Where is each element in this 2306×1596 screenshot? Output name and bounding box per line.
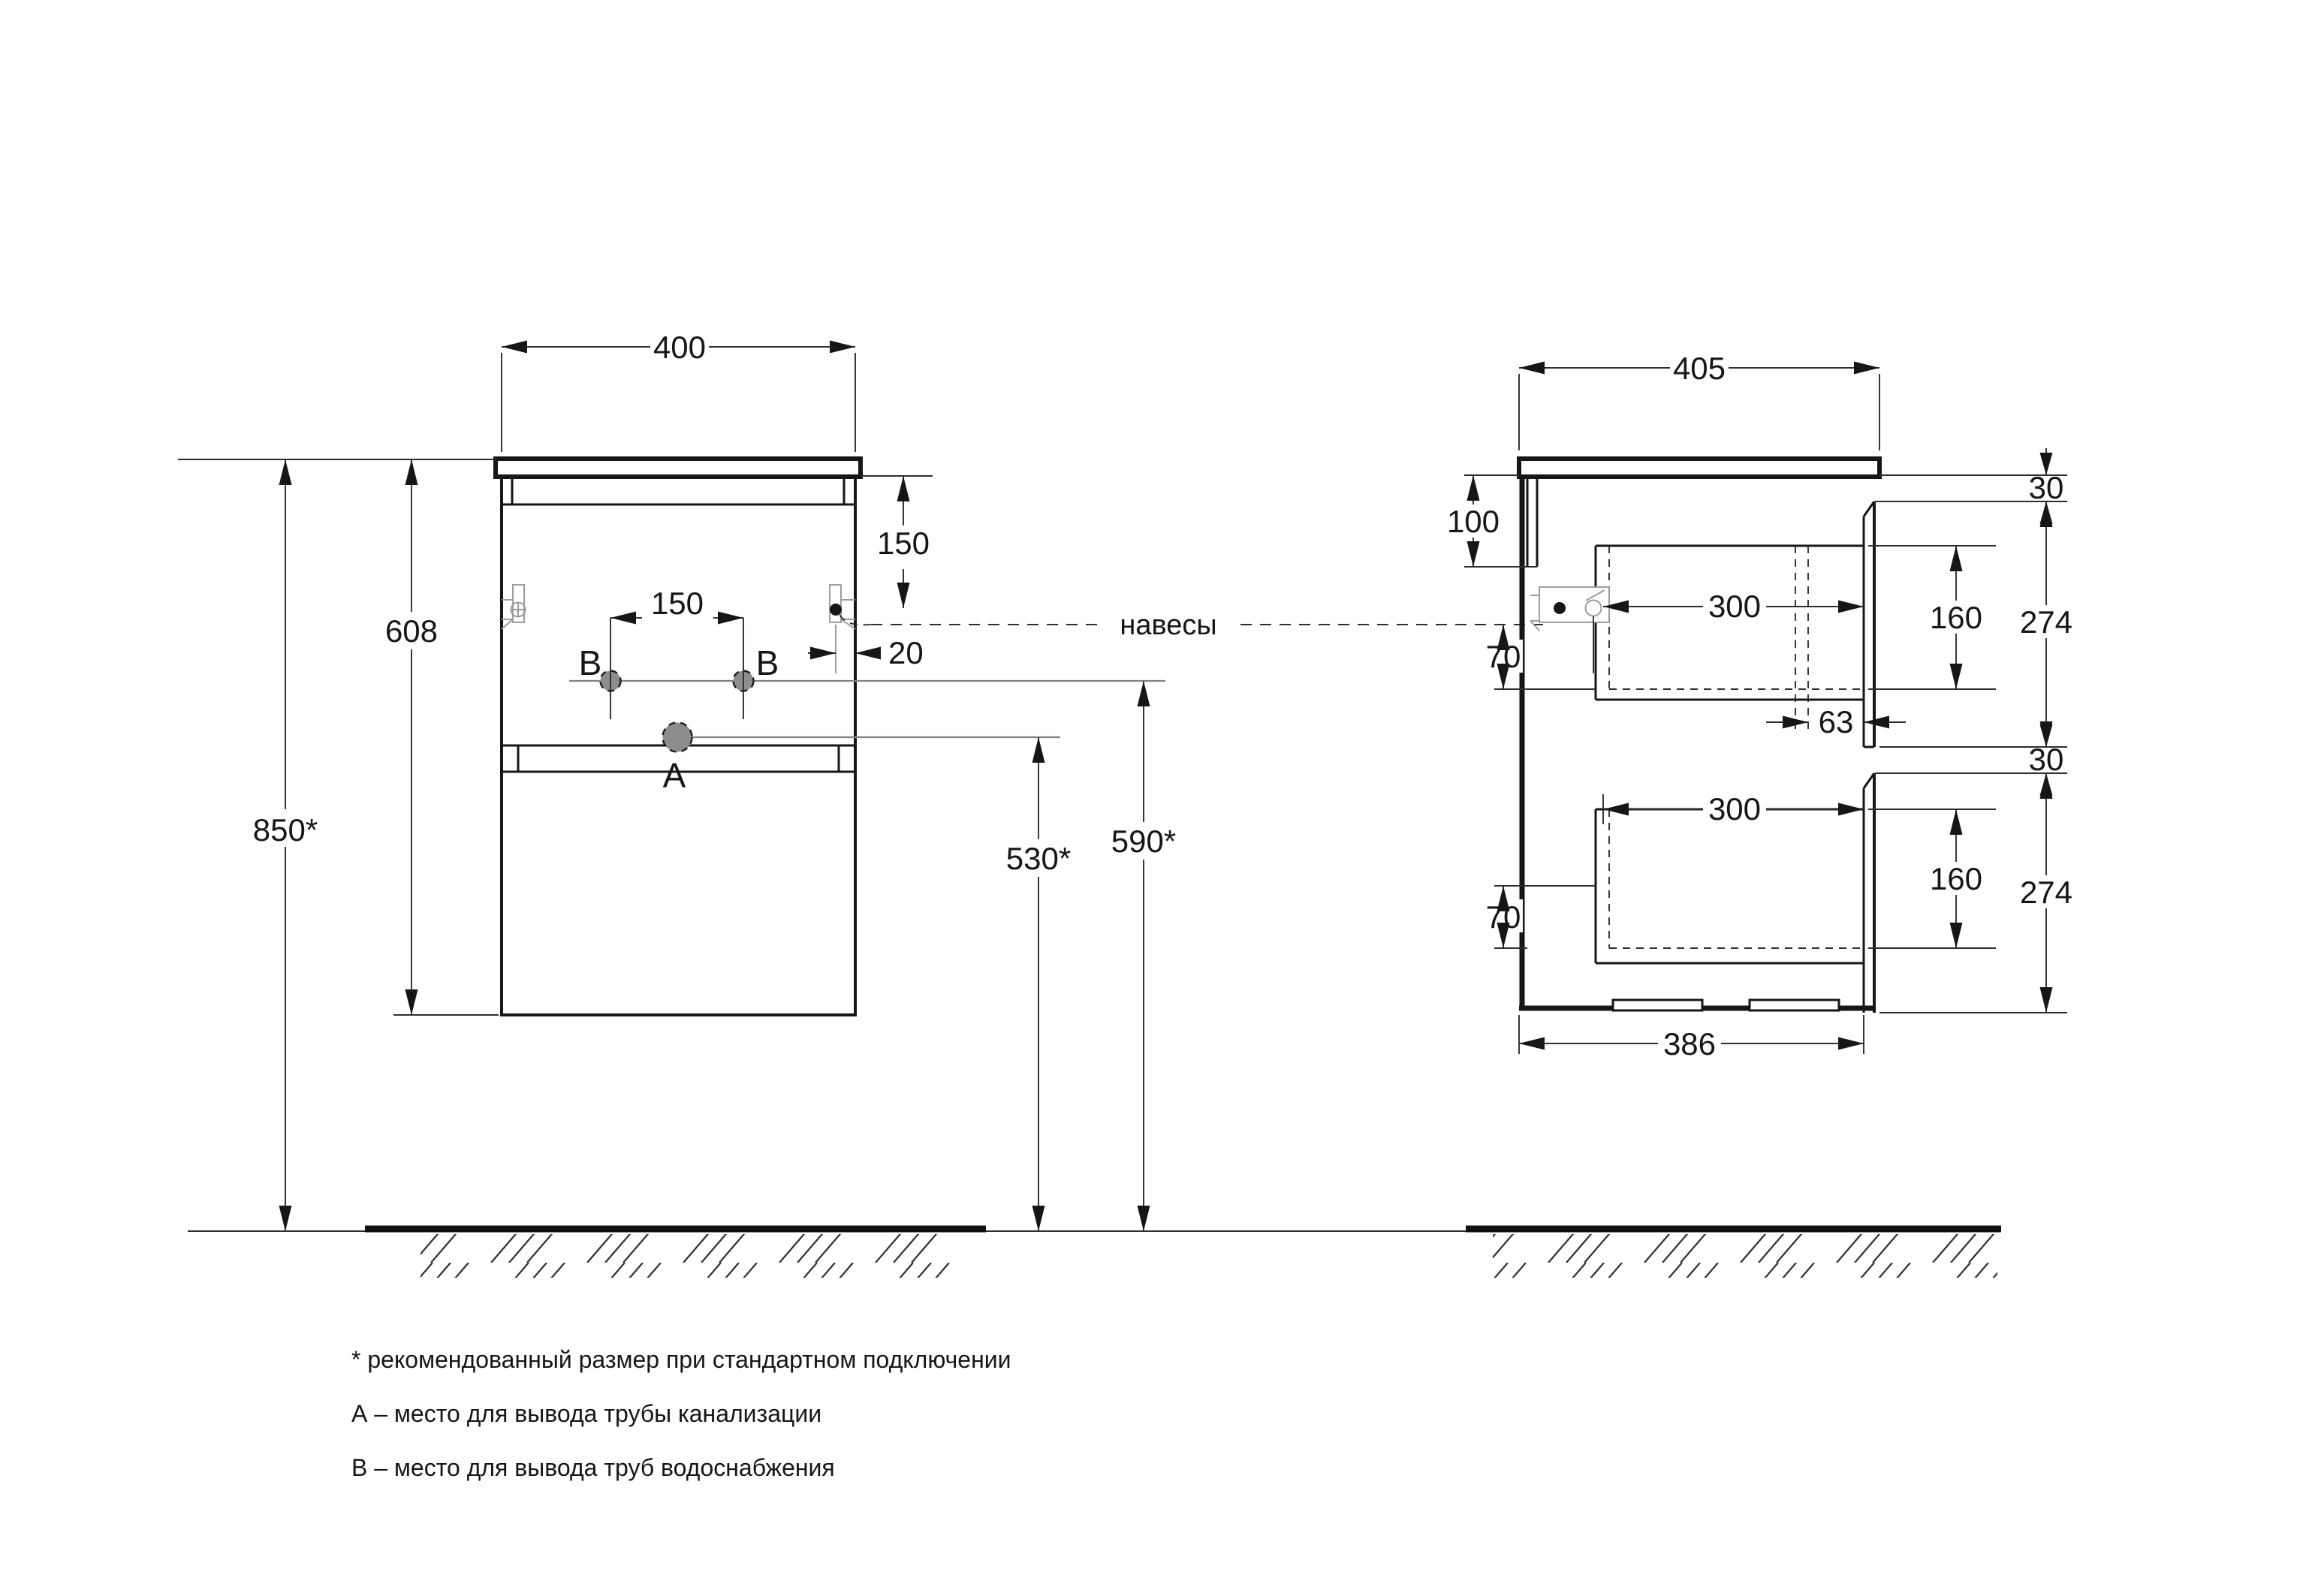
- dim-base-depth: 386: [1663, 1026, 1716, 1061]
- arrowhead: [279, 459, 292, 485]
- bracket-hole: [1586, 601, 1602, 616]
- dim-drawer-depth-lower: 300: [1708, 791, 1761, 827]
- vanity-installation-drawing: B B A 400 850* 608 530*: [0, 0, 2306, 1596]
- label-drain: A: [663, 756, 686, 795]
- dim-total-height: 850*: [253, 812, 318, 848]
- arrowhead: [1950, 546, 1963, 571]
- front-view: B B A: [496, 459, 1165, 1015]
- lower-drawer-box: [1596, 809, 1864, 963]
- arrowhead: [1467, 541, 1480, 567]
- arrowhead: [1950, 664, 1963, 689]
- front-countertop: [496, 459, 861, 477]
- ground-hatching-left: [421, 1234, 954, 1278]
- arrowhead: [502, 341, 527, 354]
- dim-drawer-box-height-lower: 160: [1930, 861, 1982, 896]
- ground-hatching-right: [1493, 1234, 1997, 1278]
- dim-stop-to-front: 63: [1819, 704, 1854, 739]
- arrowhead: [1854, 362, 1879, 375]
- arrowhead: [2040, 987, 2053, 1013]
- technical-drawing-page: B B A 400 850* 608 530*: [0, 0, 2306, 1596]
- dim-front-height-upper: 274: [2020, 604, 2072, 640]
- side-countertop: [1519, 459, 1879, 477]
- arrowhead: [1864, 716, 1889, 729]
- arrowhead: [1838, 1037, 1864, 1050]
- dim-hole-spacing: 150: [651, 586, 704, 621]
- callout-hangers: навесы: [1120, 610, 1216, 641]
- dim-back-rail-height: 100: [1447, 504, 1500, 539]
- hanger-bracket-side: [1530, 587, 1609, 673]
- drain-hole: [663, 723, 692, 752]
- bracket-mount-point: [830, 604, 842, 616]
- dim-width: 400: [653, 330, 706, 365]
- dim-drain-height: 530*: [1006, 841, 1071, 876]
- dim-top-to-hanger: 150: [877, 525, 930, 561]
- dim-drawer-box-height-upper: 160: [1930, 600, 1982, 635]
- arrowhead: [1519, 1037, 1545, 1050]
- arrowhead: [830, 341, 855, 354]
- bracket-body: [830, 585, 841, 622]
- ground: [188, 1229, 2001, 1278]
- hangers-callout: навесы: [871, 610, 1543, 641]
- arrowhead: [2040, 773, 2053, 799]
- dim-fronts-gap: 30: [2029, 742, 2064, 777]
- dim-supply-height: 590*: [1111, 824, 1176, 859]
- cabinet-foot: [1613, 1000, 1702, 1010]
- arrowhead: [279, 1206, 292, 1231]
- arrowhead: [1032, 1206, 1045, 1231]
- notes: * рекомендованный размер при стандартном…: [351, 1346, 1011, 1481]
- arrowhead: [1138, 1206, 1150, 1231]
- arrowhead: [1467, 475, 1480, 501]
- arrowhead: [2040, 501, 2053, 527]
- dim-drawer-inset-upper: 70: [1486, 639, 1521, 674]
- dim-depth: 405: [1673, 351, 1726, 386]
- arrowhead: [1950, 809, 1963, 835]
- arrowhead: [897, 476, 910, 501]
- note-drain: А – место для вывода трубы канализации: [351, 1400, 821, 1427]
- dim-counter-to-front-gap: 30: [2029, 470, 2064, 505]
- arrowhead: [855, 647, 881, 660]
- note-supply: В – место для вывода труб водоснабжения: [351, 1454, 835, 1481]
- bracket-mount-point: [1554, 602, 1566, 614]
- lower-drawer-front-chamfer: [1864, 773, 1874, 788]
- arrowhead: [1838, 803, 1864, 816]
- dim-drawer-depth-upper: 300: [1708, 589, 1761, 624]
- arrowhead: [1138, 681, 1150, 706]
- bracket-tab: [1530, 621, 1539, 631]
- label-supply-right: B: [756, 643, 779, 682]
- dim-hanger-inset: 20: [888, 635, 924, 670]
- arrowhead: [405, 989, 418, 1015]
- arrowhead: [897, 583, 910, 608]
- cabinet-foot: [1750, 1000, 1839, 1010]
- note-asterisk: * рекомендованный размер при стандартном…: [351, 1346, 1011, 1373]
- arrowhead: [1603, 803, 1629, 816]
- arrowhead: [1950, 923, 1963, 948]
- dim-drawer-inset-lower: 70: [1486, 899, 1521, 935]
- arrowhead: [1519, 362, 1545, 375]
- arrowhead: [1032, 737, 1045, 763]
- arrowhead: [1838, 601, 1864, 613]
- dim-body-height: 608: [385, 613, 438, 649]
- side-view: [1464, 459, 1879, 1013]
- arrowhead: [405, 459, 418, 485]
- dim-front-height-lower: 274: [2020, 875, 2072, 910]
- upper-drawer-front-chamfer: [1864, 501, 1874, 516]
- label-supply-left: B: [579, 643, 602, 682]
